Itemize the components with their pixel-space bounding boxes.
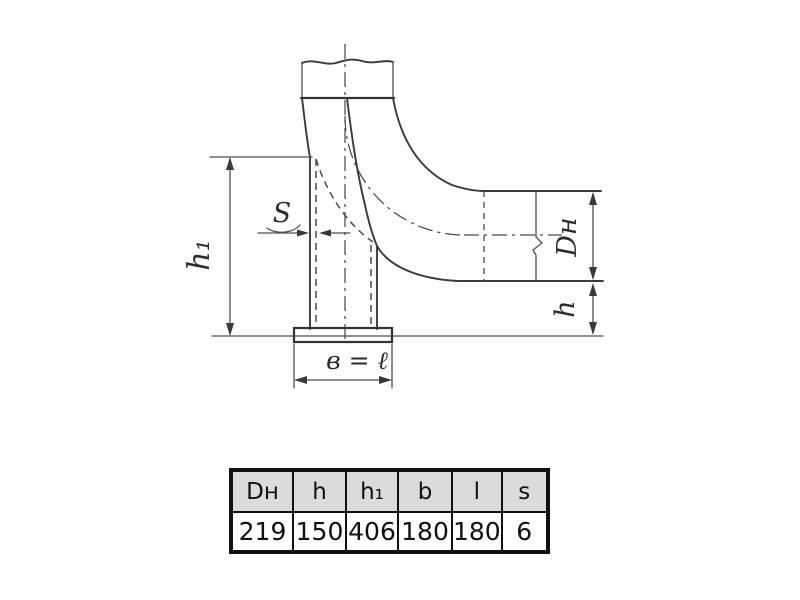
dimension-h: h — [550, 283, 597, 335]
dimension-table: Dн h h₁ b l s 219 150 406 180 180 6 — [229, 468, 550, 554]
pipe-contours — [294, 60, 603, 342]
elbow-left-edge — [302, 98, 310, 157]
dimension-h1: h₁ — [182, 157, 312, 336]
dimension-b-l: в = ℓ — [294, 344, 392, 388]
table-value-s: 6 — [502, 512, 548, 552]
elbow-center-arc — [345, 116, 464, 235]
table-value-row: 219 150 406 180 180 6 — [231, 512, 548, 552]
b-arrow-left — [294, 376, 307, 384]
h-arrow-bottom — [589, 322, 597, 335]
h1-arrow-bottom — [226, 323, 234, 336]
label-s: S — [273, 198, 292, 229]
table-header-s: s — [502, 470, 548, 512]
table-header-b: b — [398, 470, 452, 512]
table-value-l: 180 — [452, 512, 502, 552]
label-h1: h₁ — [182, 239, 217, 270]
s-arrow-right — [319, 230, 331, 237]
pipe-break-wavy-edge — [302, 60, 393, 64]
table-value-h1: 406 — [346, 512, 398, 552]
table-value-h: 150 — [293, 512, 346, 552]
table-header-h: h — [293, 470, 346, 512]
h1-arrow-top — [226, 157, 234, 170]
table-header-h1: h₁ — [346, 470, 398, 512]
label-dn: Dн — [552, 217, 583, 257]
pipe-break-line — [533, 191, 542, 281]
table-value-dn: 219 — [231, 512, 293, 552]
b-arrow-right — [379, 376, 392, 384]
elbow-outer-curve — [393, 98, 601, 191]
table-header-dn: Dн — [231, 470, 293, 512]
label-b-l: в = ℓ — [326, 346, 388, 375]
base-plate — [294, 328, 392, 342]
h-arrow-top — [589, 283, 597, 296]
dn-arrow-bottom — [589, 267, 597, 280]
table-header-l: l — [452, 470, 502, 512]
table-header-row: Dн h h₁ b l s — [231, 470, 548, 512]
s-arrow-left — [297, 230, 309, 237]
label-h: h — [550, 300, 581, 317]
dn-arrow-top — [589, 192, 597, 205]
dimension-dn: Dн — [552, 192, 597, 280]
table-value-b: 180 — [398, 512, 452, 552]
drawing-page: h₁ S в = ℓ Dн — [0, 0, 800, 600]
